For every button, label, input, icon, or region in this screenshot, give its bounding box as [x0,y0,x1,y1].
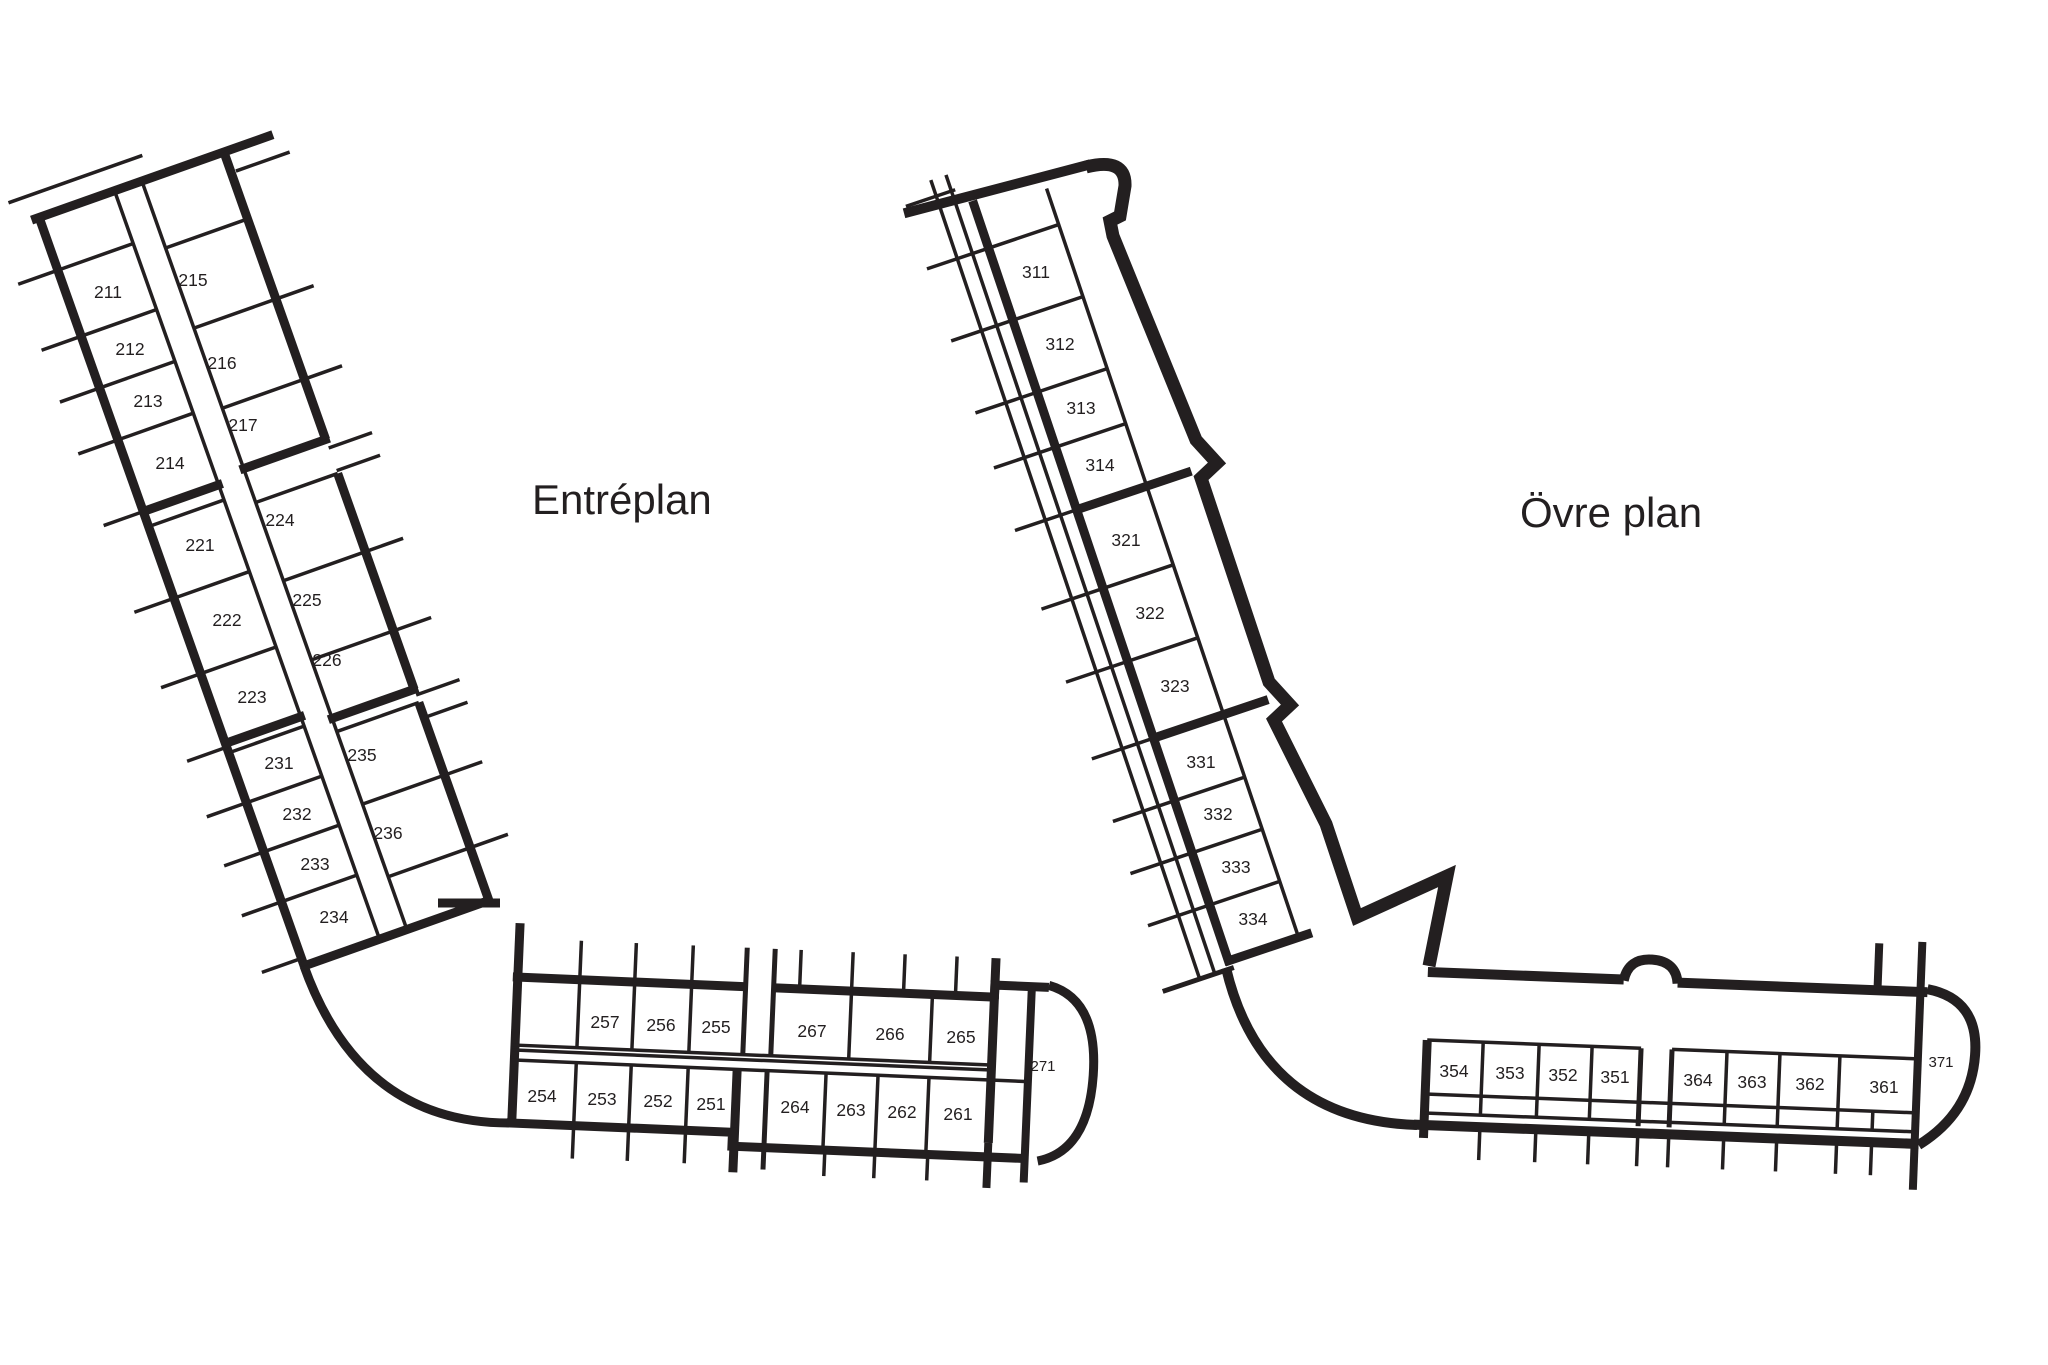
room-label: 232 [282,804,311,824]
tick [1535,1129,1536,1162]
room-wall [1481,1042,1483,1096]
tick [224,851,265,866]
room-label: 224 [265,510,294,530]
tick [1113,801,1175,822]
room-wall [823,1073,826,1150]
tick [78,439,119,454]
tick [580,941,582,980]
room-wall [1103,565,1173,589]
plan-title-ovre-plan: Övre plan [1520,489,1702,536]
room-label: 264 [780,1097,809,1117]
section-wall [139,483,222,512]
room-wall [118,413,193,440]
tick [161,673,202,688]
room-label: 215 [178,270,207,290]
tick [852,952,854,991]
room-wall [100,361,175,388]
room-label: 322 [1135,603,1164,623]
entreplan-diagonal-wing [0,109,547,980]
exterior-wall [994,985,1049,1001]
tick [1722,1136,1723,1169]
ovre-plan-base-wing [1412,923,1979,1192]
room-label: 361 [1869,1077,1898,1097]
exterior-wall [973,201,1230,965]
floorplan-diagram: 211 212 213 214 221 222 223 231 232 233 … [0,0,2048,1365]
room-wall [264,825,339,852]
room-label: 334 [1238,909,1267,929]
tick [262,958,303,973]
stub-wall [512,923,520,1123]
room-wall [256,473,338,502]
tick [955,956,957,995]
room-label: 321 [1111,530,1140,550]
tick [572,1126,573,1159]
room-wall [222,379,304,408]
tick [903,954,905,993]
balcony-divider [1872,1111,1873,1130]
tick [951,320,1013,341]
room-wall [388,848,470,877]
room-wall [988,958,996,1143]
exterior-wall [338,473,414,689]
room-wall [1128,638,1198,662]
landing-rail [337,455,380,470]
room-label: 332 [1203,804,1232,824]
room-wall [1537,1044,1539,1098]
room-label: 267 [797,1021,826,1041]
tick [986,1143,988,1188]
tick [1130,853,1192,874]
room-label: 313 [1066,398,1095,418]
balcony-divider [1536,1098,1537,1117]
room-label: 262 [887,1102,916,1122]
room-label: 236 [373,823,402,843]
exterior-wall [224,152,326,440]
room-label: 251 [696,1094,725,1114]
room-label: 253 [587,1089,616,1109]
tick [1015,510,1077,531]
landing-rail [416,680,459,695]
room-wall [849,991,852,1059]
tick [470,834,508,847]
section-wall [1150,700,1268,740]
room-label: 254 [527,1086,556,1106]
room-label: 226 [312,650,341,670]
corridor-wall [1047,189,1299,938]
room-label: 214 [155,453,184,473]
entrance-wall [743,948,747,1055]
room-label: 271 [1030,1058,1055,1075]
tick [824,1150,825,1176]
tick [1092,738,1154,759]
room-wall [281,875,356,902]
tick [927,248,989,269]
room-label: 265 [946,1027,975,1047]
room-wall [632,982,635,1050]
room-label: 352 [1548,1065,1577,1085]
room-label: 314 [1085,455,1114,475]
room-wall [1013,297,1083,321]
tick [104,511,145,526]
room-wall [733,1069,737,1172]
room-label: 261 [943,1104,972,1124]
tick [975,392,1037,413]
room-label: 235 [347,745,376,765]
tick [1775,1139,1776,1172]
tick [276,286,314,299]
room-label: 323 [1160,676,1189,696]
entreplan: 211 212 213 214 221 222 223 231 232 233 … [0,109,1099,1193]
tick [692,945,694,984]
stub-wall [1878,943,1880,989]
section-wall [240,438,330,470]
exterior-wall [1678,983,1928,993]
balcony-divider [1837,1110,1838,1129]
tick [1066,661,1128,682]
tick [445,762,483,775]
room-label: 371 [1928,1054,1953,1071]
room-wall [1175,777,1245,801]
room-label: 363 [1737,1072,1766,1092]
tick [684,1130,685,1163]
room-wall [246,776,321,803]
room-label: 311 [1022,262,1050,282]
room-label: 255 [701,1017,730,1037]
tick [1668,1134,1669,1167]
plan-title-entreplan: Entréplan [532,476,712,523]
tick [1588,1131,1589,1164]
tick [60,387,101,402]
balcony-divider [1480,1096,1481,1115]
tick [365,538,403,551]
room-label: 353 [1495,1063,1524,1083]
room-wall [1672,1049,1918,1058]
entrance-wall [771,949,775,1056]
room-wall [577,980,580,1048]
end-room-wall [1024,987,1032,1183]
tick [800,950,802,989]
room-wall [58,244,133,271]
end-room-wall [1913,942,1923,1190]
exterior-wall [513,977,744,987]
room-wall [1427,1040,1641,1048]
landing-rail [424,702,467,717]
room-wall [930,995,933,1063]
room-label: 217 [228,415,257,435]
tick [1041,588,1103,609]
tick [242,901,283,916]
passage-wall [1638,1048,1641,1126]
tick [187,747,228,762]
room-label: 333 [1221,857,1250,877]
room-label: 231 [264,753,293,773]
exterior-wall [419,703,489,901]
passage-wall [1669,1049,1672,1127]
landing-rail [329,433,372,448]
room-wall [283,552,365,581]
terrace-line [236,152,290,171]
tick [42,336,83,351]
room-label: 364 [1683,1070,1712,1090]
room-label: 266 [875,1024,904,1044]
room-wall [81,310,156,337]
terrace-line [8,155,142,202]
room-label: 216 [207,353,236,373]
room-label: 211 [94,282,122,302]
room-wall [1778,1054,1780,1108]
exterior-wall [776,988,995,997]
room-label: 212 [115,339,144,359]
floorplan-page: 211 212 213 214 221 222 223 231 232 233 … [0,0,2048,1365]
room-wall [1838,1056,1840,1110]
room-wall [629,1065,632,1128]
balcony-divider [1589,1100,1590,1119]
room-wall [166,219,248,248]
ovre-plan: 311 312 313 314 321 322 323 331 332 333 … [894,130,1980,1192]
tick [874,1152,875,1178]
tick [207,802,248,817]
room-label: 351 [1600,1067,1629,1087]
room-wall [1590,1046,1592,1100]
room-wall [194,299,276,328]
end-wall [1225,933,1312,962]
room-label: 225 [292,590,321,610]
room-wall [201,647,276,674]
double-wall [512,1050,992,1070]
tick [635,943,637,982]
tick [994,447,1056,468]
room-wall [763,1071,767,1170]
tick [1479,1127,1480,1160]
curved-exterior-wall [304,966,509,1123]
tick [18,270,59,285]
curved-exterior-wall [1226,968,1417,1125]
room-wall [689,984,692,1052]
room-label: 252 [643,1091,672,1111]
balcony-divider [1724,1106,1725,1125]
tick [1148,905,1210,926]
tick [627,1128,628,1161]
room-label: 312 [1045,334,1074,354]
room-label: 354 [1439,1061,1468,1081]
room-label: 221 [185,535,214,555]
balcony-rail [931,180,1200,979]
room-label: 233 [300,854,329,874]
exterior-wall [1428,972,1624,980]
room-label: 223 [237,687,266,707]
tick [134,598,175,613]
room-label: 257 [590,1012,619,1032]
tick [1870,1142,1871,1175]
room-wall [174,572,249,599]
room-wall [1725,1052,1727,1106]
room-wall [363,775,445,804]
room-wall [989,225,1059,249]
room-label: 222 [212,610,241,630]
room-label: 256 [646,1015,675,1035]
room-wall [686,1067,689,1130]
room-label: 234 [319,907,348,927]
entreplan-base-wing [505,923,1099,1192]
tick [393,618,431,631]
tick [1835,1141,1836,1174]
section-wall [328,688,418,720]
balcony-rail [946,175,1215,974]
tick [927,1154,928,1180]
room-wall [1037,369,1107,393]
tick [304,366,342,379]
corridor-wall [116,195,380,940]
room-wall [574,1063,577,1126]
room-label: 213 [133,391,162,411]
tick [1637,1133,1638,1166]
section-wall [1073,471,1191,511]
room-wall [1210,881,1280,905]
wall-bump [1624,958,1679,983]
room-wall [926,1077,929,1154]
balcony-divider [1777,1108,1778,1127]
room-wall [1192,829,1262,853]
room-wall [875,1075,878,1152]
room-label: 263 [836,1100,865,1120]
room-wall [1056,424,1126,448]
room-label: 362 [1795,1074,1824,1094]
room-label: 331 [1186,752,1215,772]
